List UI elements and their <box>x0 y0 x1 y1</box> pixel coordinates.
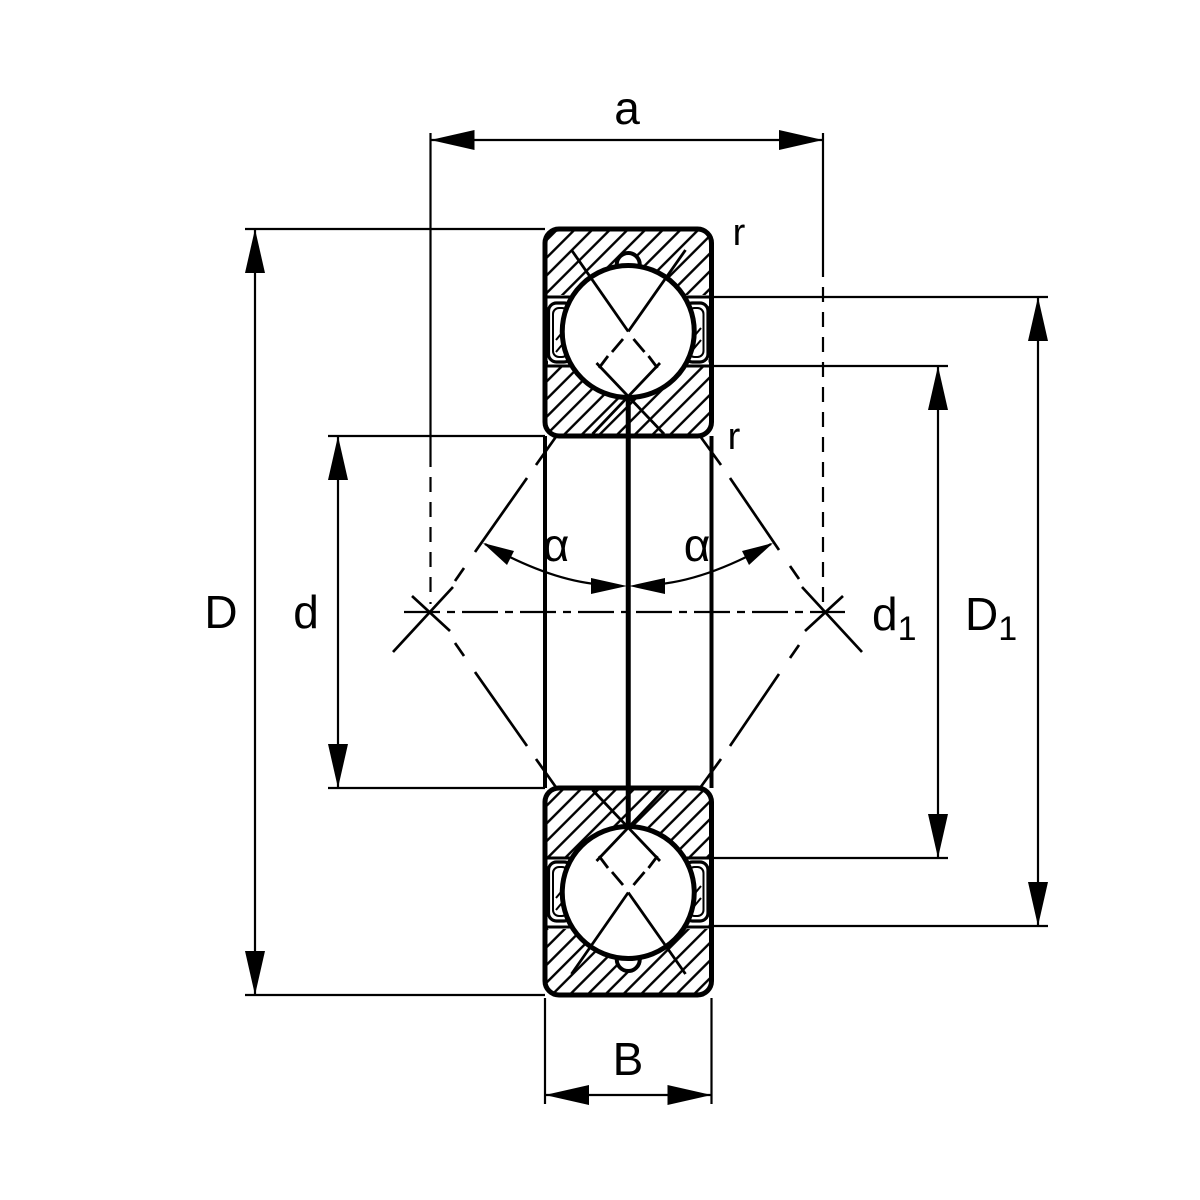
label-d1: d1 <box>872 588 917 648</box>
label-r-top: r <box>733 212 746 254</box>
label-a: a <box>614 82 640 134</box>
label-alpha-right: α <box>684 519 711 571</box>
bearing-cross-section-diagram: D d a d1 D1 <box>0 0 1200 1200</box>
label-d: d <box>293 586 319 638</box>
pressure-apex-right <box>802 587 862 652</box>
label-B: B <box>613 1033 644 1085</box>
label-r-bottom: r <box>728 416 741 458</box>
label-D1: D1 <box>965 588 1017 648</box>
pressure-apex-left <box>393 587 453 652</box>
bearing-drawing-sheet: D d a d1 D1 <box>0 0 1200 1200</box>
label-D: D <box>204 586 237 638</box>
dimension-B: B <box>545 998 712 1105</box>
contact-angle-right: α <box>629 519 773 594</box>
label-alpha-left: α <box>543 519 570 571</box>
contact-angle-left: α <box>483 519 627 594</box>
